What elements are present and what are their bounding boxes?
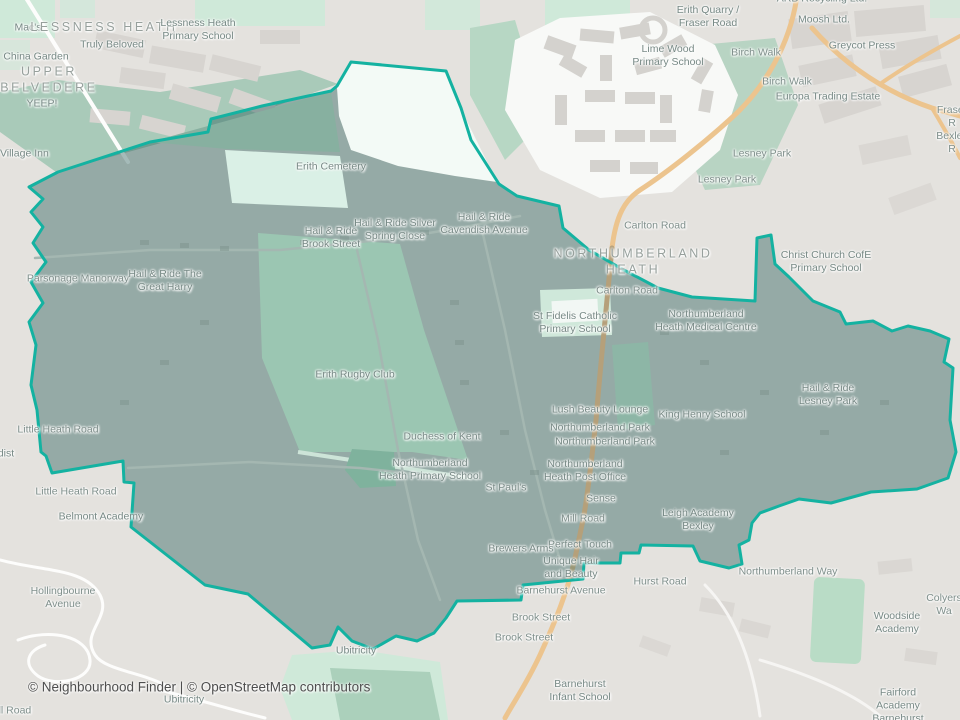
- attribution-text: © Neighbourhood Finder | © OpenStreetMap…: [28, 680, 370, 695]
- map-canvas[interactable]: © Neighbourhood Finder | © OpenStreetMap…: [0, 0, 960, 720]
- basemap-svg: [0, 0, 960, 720]
